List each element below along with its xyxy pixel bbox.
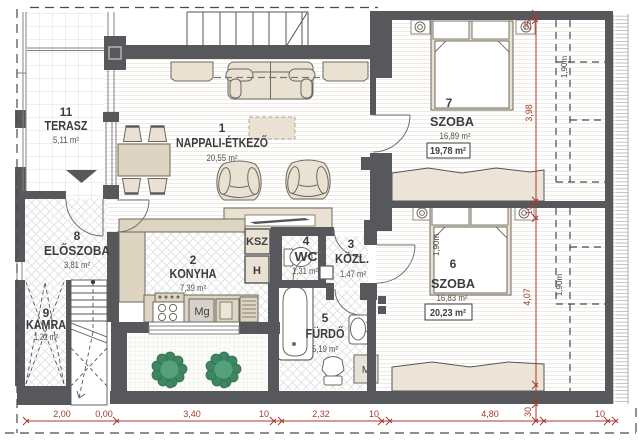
svg-text:11: 11 xyxy=(60,105,73,119)
svg-text:1,22 m²: 1,22 m² xyxy=(34,332,58,342)
svg-text:KONYHA: KONYHA xyxy=(170,266,218,281)
svg-text:1,47 m²: 1,47 m² xyxy=(340,269,366,279)
svg-text:8: 8 xyxy=(74,229,81,243)
svg-text:KÖZL.: KÖZL. xyxy=(335,251,369,266)
svg-text:19,78 m²: 19,78 m² xyxy=(430,146,467,157)
svg-text:16,83 m²: 16,83 m² xyxy=(437,293,468,303)
svg-text:5: 5 xyxy=(322,311,329,325)
svg-text:16,89 m²: 16,89 m² xyxy=(440,131,471,141)
svg-text:3,98: 3,98 xyxy=(524,104,534,122)
svg-text:KSZ: KSZ xyxy=(246,236,268,248)
svg-text:SZOBA: SZOBA xyxy=(430,114,475,129)
svg-text:TERASZ: TERASZ xyxy=(45,118,88,133)
svg-text:5,19 m²: 5,19 m² xyxy=(312,344,338,354)
svg-text:20,23 m²: 20,23 m² xyxy=(430,308,467,319)
svg-text:7,39 m²: 7,39 m² xyxy=(180,283,206,293)
svg-text:3,40: 3,40 xyxy=(183,409,201,419)
svg-text:4,80: 4,80 xyxy=(481,409,499,419)
svg-text:NAPPALI-ÉTKEZŐ: NAPPALI-ÉTKEZŐ xyxy=(176,135,268,150)
svg-text:2: 2 xyxy=(190,253,197,267)
svg-text:0,00: 0,00 xyxy=(95,409,113,419)
svg-text:1: 1 xyxy=(219,121,226,135)
svg-text:10: 10 xyxy=(369,409,379,419)
svg-text:H: H xyxy=(253,265,261,277)
svg-text:4,07: 4,07 xyxy=(522,288,532,306)
svg-text:Mg: Mg xyxy=(194,306,209,318)
svg-text:FÜRDŐ: FÜRDŐ xyxy=(306,326,345,341)
svg-text:7: 7 xyxy=(446,96,453,110)
svg-text:WC: WC xyxy=(295,249,319,264)
svg-text:10: 10 xyxy=(524,205,534,215)
svg-text:10: 10 xyxy=(259,409,269,419)
svg-text:SZOBA: SZOBA xyxy=(431,276,476,291)
svg-text:3,81 m²: 3,81 m² xyxy=(64,260,90,270)
svg-text:1,90m: 1,90m xyxy=(432,234,441,257)
svg-text:1,90m: 1,90m xyxy=(560,56,569,79)
svg-text:30: 30 xyxy=(523,407,533,417)
svg-text:10: 10 xyxy=(595,409,605,419)
svg-text:2,00: 2,00 xyxy=(53,409,71,419)
svg-text:6: 6 xyxy=(450,257,457,271)
svg-text:2,32: 2,32 xyxy=(312,409,330,419)
svg-text:3: 3 xyxy=(348,237,355,251)
svg-text:1,31 m²: 1,31 m² xyxy=(292,266,318,276)
svg-text:5,11 m²: 5,11 m² xyxy=(53,135,79,145)
svg-text:25: 25 xyxy=(523,20,533,30)
svg-text:KAMRA: KAMRA xyxy=(26,317,66,332)
svg-text:4: 4 xyxy=(303,234,310,248)
svg-text:20,55 m²: 20,55 m² xyxy=(207,153,238,163)
svg-text:ELŐSZOBA: ELŐSZOBA xyxy=(44,243,111,258)
svg-text:1,90m: 1,90m xyxy=(555,274,564,297)
